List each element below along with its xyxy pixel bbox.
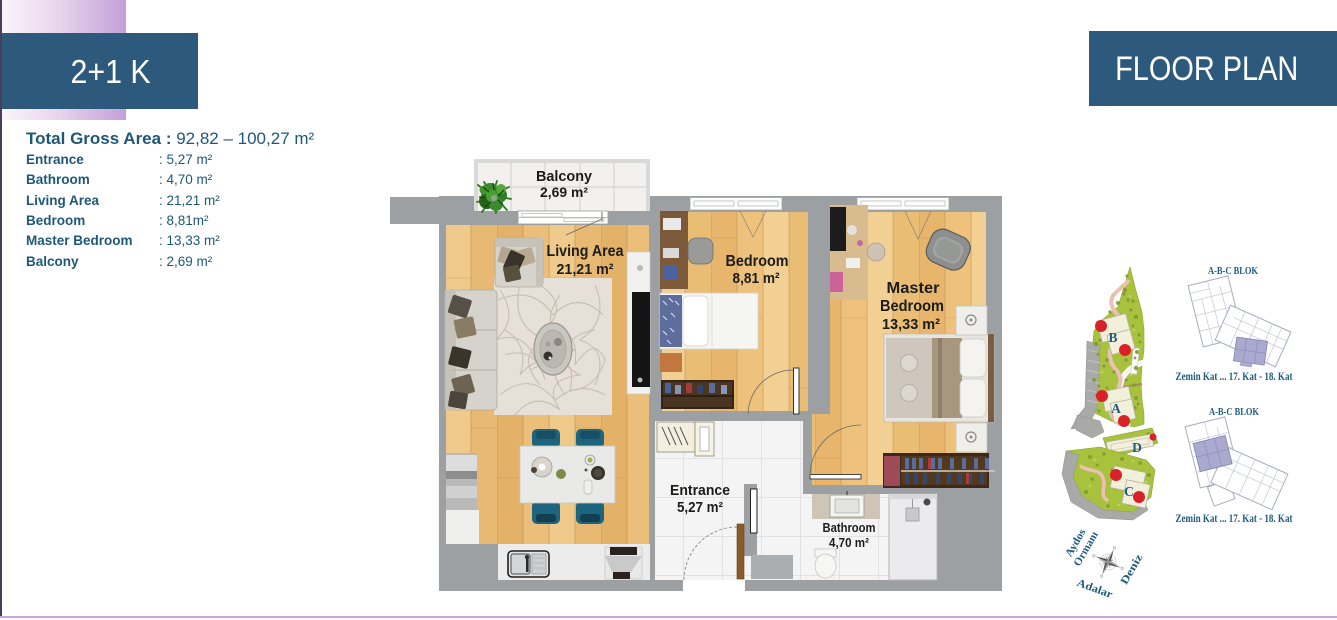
svg-text:A-B-C BLOK: A-B-C BLOK <box>1209 406 1259 418</box>
svg-text:Entrance: Entrance <box>670 482 730 499</box>
svg-text:4,70 m²: 4,70 m² <box>829 536 869 550</box>
svg-text:Balcony: Balcony <box>536 169 592 185</box>
svg-text:2,69 m²: 2,69 m² <box>540 184 588 200</box>
svg-text:Bedroom: Bedroom <box>726 253 789 270</box>
svg-text:B: B <box>1108 330 1117 345</box>
svg-text:Zemin Kat ... 17. Kat - 18. Ka: Zemin Kat ... 17. Kat - 18. Kat <box>1176 371 1293 383</box>
svg-text:Bathroom: Bathroom <box>823 520 876 535</box>
svg-text:Bedroom: Bedroom <box>880 298 944 315</box>
svg-text:Zemin Kat ... 17. Kat - 18. Ka: Zemin Kat ... 17. Kat - 18. Kat <box>1176 513 1293 525</box>
svg-text:Adalar: Adalar <box>1075 577 1114 601</box>
svg-text:C: C <box>1124 484 1134 499</box>
svg-text:A-B-C BLOK: A-B-C BLOK <box>1208 265 1258 277</box>
svg-text:21,21 m²: 21,21 m² <box>557 261 614 278</box>
svg-text:Living Area: Living Area <box>547 243 624 260</box>
svg-text:A: A <box>1111 401 1121 416</box>
svg-text:Master: Master <box>887 280 940 297</box>
svg-text:8,81 m²: 8,81 m² <box>733 270 780 287</box>
svg-text:13,33 m²: 13,33 m² <box>882 316 940 333</box>
svg-text:D: D <box>1132 440 1142 455</box>
svg-text:5,27 m²: 5,27 m² <box>677 500 723 516</box>
